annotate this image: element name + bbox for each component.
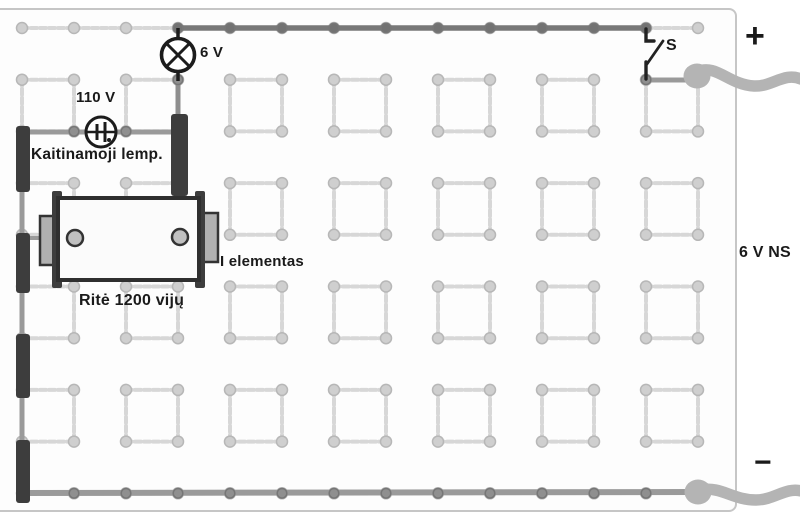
peg-dot	[329, 384, 340, 395]
peg-dot	[225, 333, 236, 344]
circuit-peg	[537, 489, 547, 499]
peg-dot	[693, 23, 704, 34]
peg-dot	[485, 126, 496, 137]
peg-dot	[693, 178, 704, 189]
connector-bar	[16, 334, 30, 398]
circuit-board-figure: 6 V 110 V Kaitinamoji lemp. Ritė 1200 vi…	[0, 0, 800, 518]
circuit-peg	[225, 489, 235, 499]
circuit-peg	[589, 23, 599, 33]
peg-dot	[433, 126, 444, 137]
peg-dot	[641, 126, 652, 137]
peg-dot	[121, 281, 132, 292]
peg-dot	[329, 229, 340, 240]
circuit-peg	[225, 23, 235, 33]
peg-dot	[381, 229, 392, 240]
peg-dot	[641, 229, 652, 240]
circuit-peg	[381, 23, 391, 33]
peg-dot	[121, 436, 132, 447]
connector-bar	[16, 233, 30, 293]
peg-dot	[329, 74, 340, 85]
label-coil: Ritė 1200 vijų	[79, 292, 184, 310]
coil-component	[40, 191, 218, 288]
peg-dot	[537, 436, 548, 447]
circuit-peg	[329, 23, 339, 33]
peg-dot	[589, 281, 600, 292]
peg-dot	[69, 384, 80, 395]
peg-dot	[693, 384, 704, 395]
label-minus-terminal: −	[754, 446, 772, 479]
circuit-peg	[277, 489, 287, 499]
circuit-peg	[69, 489, 79, 499]
connector-bar	[16, 126, 30, 192]
peg-dot	[225, 178, 236, 189]
peg-dot	[277, 126, 288, 137]
circuit-peg	[485, 489, 495, 499]
peg-dot	[225, 436, 236, 447]
peg-dot	[69, 281, 80, 292]
peg-dot	[225, 384, 236, 395]
peg-dot	[329, 436, 340, 447]
peg-dot	[693, 281, 704, 292]
peg-dot	[485, 436, 496, 447]
peg-dot	[433, 178, 444, 189]
peg-dot	[17, 74, 28, 85]
peg-dot	[69, 74, 80, 85]
peg-dot	[485, 178, 496, 189]
circuit-peg	[641, 489, 651, 499]
circuit-peg	[329, 489, 339, 499]
lamp-110v-symbol	[86, 117, 116, 147]
circuit-peg	[69, 127, 79, 137]
peg-dot	[69, 333, 80, 344]
peg-dot	[485, 333, 496, 344]
peg-dot	[641, 333, 652, 344]
peg-dot	[225, 126, 236, 137]
board-svg	[0, 0, 800, 518]
peg-dot	[537, 74, 548, 85]
peg-dot	[381, 178, 392, 189]
peg-dot	[17, 23, 28, 34]
peg-dot	[121, 178, 132, 189]
peg-dot	[277, 384, 288, 395]
label-plus-terminal: +	[745, 18, 765, 55]
peg-dot	[433, 74, 444, 85]
peg-dot	[485, 281, 496, 292]
label-110v-rating: 110 V	[76, 90, 115, 107]
peg-dot	[693, 436, 704, 447]
peg-dot	[381, 126, 392, 137]
peg-dot	[537, 229, 548, 240]
connector-bar	[16, 440, 30, 503]
peg-dot	[537, 178, 548, 189]
peg-dot	[641, 281, 652, 292]
peg-dot	[329, 333, 340, 344]
peg-dot	[173, 384, 184, 395]
peg-dot	[329, 178, 340, 189]
peg-dot	[121, 384, 132, 395]
peg-dot	[537, 333, 548, 344]
peg-dot	[381, 281, 392, 292]
circuit-peg	[381, 489, 391, 499]
peg-dot	[641, 178, 652, 189]
peg-dot	[381, 74, 392, 85]
circuit-peg	[485, 23, 495, 33]
peg-dot	[537, 281, 548, 292]
peg-dot	[589, 229, 600, 240]
peg-dot	[225, 281, 236, 292]
peg-dot	[693, 333, 704, 344]
peg-dot	[433, 229, 444, 240]
peg-dot	[433, 281, 444, 292]
peg-dot	[277, 74, 288, 85]
peg-dot	[589, 436, 600, 447]
peg-dot	[277, 178, 288, 189]
peg-dot	[277, 229, 288, 240]
peg-dot	[381, 333, 392, 344]
circuit-peg	[537, 23, 547, 33]
peg-dot	[69, 178, 80, 189]
circuit-peg	[277, 23, 287, 33]
circuit-peg	[173, 489, 183, 499]
peg-dot	[485, 74, 496, 85]
peg-dot	[121, 23, 132, 34]
peg-dot	[589, 126, 600, 137]
peg-dot	[381, 436, 392, 447]
circuit-peg	[121, 127, 131, 137]
peg-dot	[173, 436, 184, 447]
peg-dot	[537, 126, 548, 137]
peg-dot	[433, 333, 444, 344]
peg-dot	[485, 229, 496, 240]
peg-dot	[69, 23, 80, 34]
peg-dot	[381, 384, 392, 395]
peg-dot	[589, 333, 600, 344]
peg-dot	[69, 436, 80, 447]
label-source-6vns: 6 V NS	[739, 244, 791, 262]
coil-terminal	[67, 230, 83, 246]
peg-dot	[277, 281, 288, 292]
peg-dot	[537, 384, 548, 395]
circuit-peg	[589, 489, 599, 499]
peg-dot	[225, 74, 236, 85]
peg-dot	[277, 436, 288, 447]
lamp-110v-filament-dot	[107, 138, 111, 142]
peg-dot	[225, 229, 236, 240]
label-cell: I elementas	[220, 254, 304, 271]
connector-bar	[171, 114, 188, 196]
circuit-peg	[433, 489, 443, 499]
peg-dot	[121, 74, 132, 85]
peg-dot	[173, 333, 184, 344]
label-incandescent-lamp: Kaitinamoji lemp.	[31, 146, 163, 163]
peg-dot	[277, 333, 288, 344]
peg-dot	[433, 436, 444, 447]
peg-dot	[641, 436, 652, 447]
peg-dot	[693, 229, 704, 240]
peg-dot	[589, 384, 600, 395]
peg-dot	[173, 281, 184, 292]
peg-dot	[329, 281, 340, 292]
peg-dot	[641, 384, 652, 395]
peg-dot	[589, 74, 600, 85]
peg-dot	[433, 384, 444, 395]
circuit-peg	[433, 23, 443, 33]
peg-dot	[589, 178, 600, 189]
label-6v-lamp: 6 V	[200, 45, 223, 62]
coil-terminal	[172, 229, 188, 245]
peg-dot	[121, 333, 132, 344]
peg-dot	[693, 126, 704, 137]
circuit-peg	[121, 489, 131, 499]
peg-dot	[485, 384, 496, 395]
label-switch: S	[666, 37, 677, 55]
peg-dot	[329, 126, 340, 137]
